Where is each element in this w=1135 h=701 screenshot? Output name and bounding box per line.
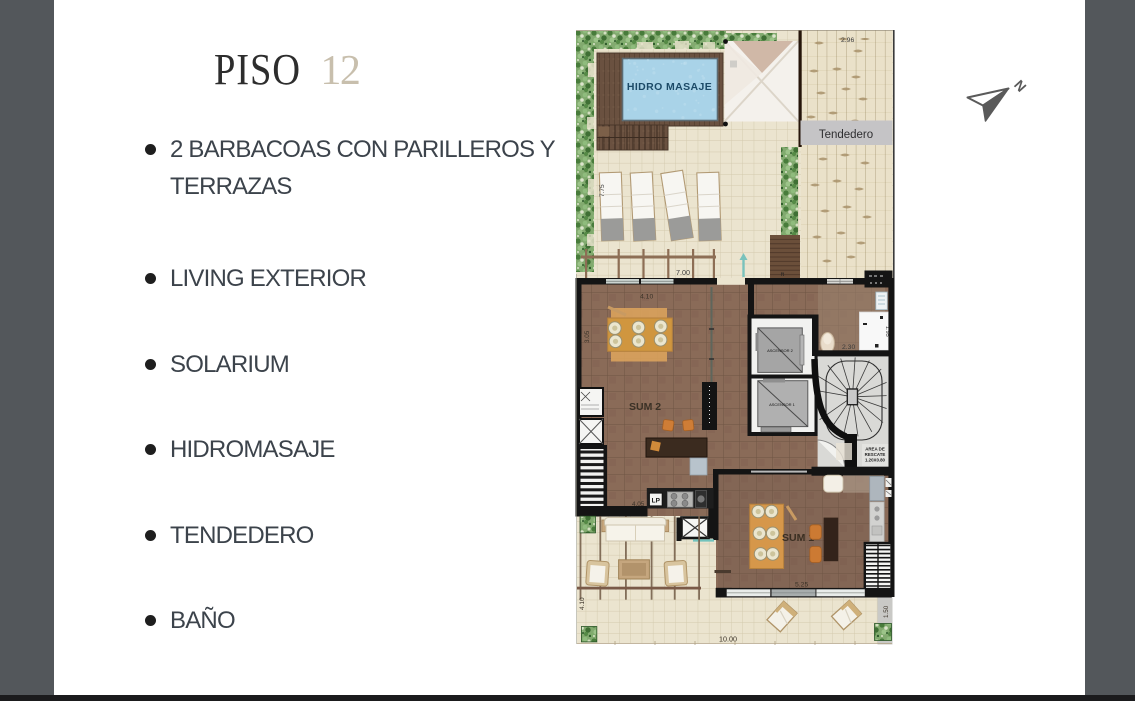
- svg-text:N: N: [1011, 77, 1030, 95]
- svg-text:AREA DE: AREA DE: [865, 447, 885, 452]
- svg-text:7.00: 7.00: [676, 268, 690, 277]
- svg-text:ASCENSOR 1: ASCENSOR 1: [769, 402, 796, 407]
- svg-text:7.75: 7.75: [599, 184, 606, 197]
- svg-text:Tendedero: Tendedero: [819, 129, 873, 141]
- svg-text:SUM 2: SUM 2: [629, 401, 661, 413]
- svg-text:ASCENSOR 2: ASCENSOR 2: [767, 348, 794, 353]
- svg-text:RESCATE: RESCATE: [865, 452, 886, 457]
- svg-text:4.10: 4.10: [640, 294, 653, 301]
- svg-text:1.20X0.80: 1.20X0.80: [865, 458, 886, 463]
- svg-text:LP: LP: [652, 498, 661, 505]
- svg-text:2.30: 2.30: [842, 344, 855, 351]
- svg-text:5.25: 5.25: [795, 582, 808, 589]
- svg-text:HIDRO MASAJE: HIDRO MASAJE: [627, 81, 712, 93]
- svg-text:10.00: 10.00: [719, 635, 737, 644]
- svg-text:4.10: 4.10: [579, 597, 586, 610]
- svg-text:4.05: 4.05: [632, 501, 645, 508]
- svg-text:1.50: 1.50: [883, 605, 890, 618]
- svg-text:3.05: 3.05: [584, 330, 591, 343]
- svg-text:2.96: 2.96: [841, 37, 854, 44]
- svg-text:ft: ft: [781, 272, 785, 278]
